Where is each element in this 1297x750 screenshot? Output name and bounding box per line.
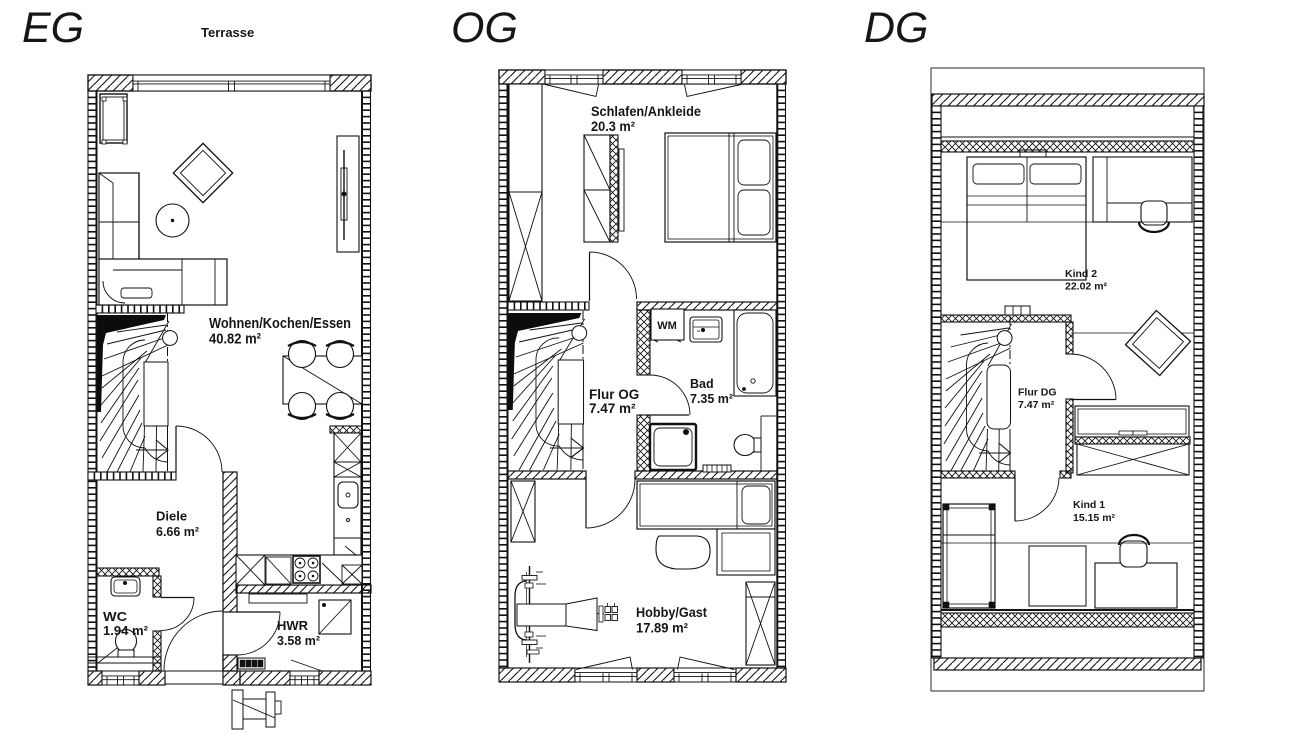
svg-text:Hobby/Gast: Hobby/Gast bbox=[636, 605, 707, 620]
svg-text:20.3 m²: 20.3 m² bbox=[591, 118, 635, 134]
svg-text:22.02 m²: 22.02 m² bbox=[1065, 281, 1108, 293]
svg-text:1.94 m²: 1.94 m² bbox=[103, 623, 149, 638]
svg-text:Schlafen/Ankleide: Schlafen/Ankleide bbox=[591, 103, 701, 119]
svg-text:7.47 m²: 7.47 m² bbox=[589, 401, 636, 416]
svg-text:Flur OG: Flur OG bbox=[589, 387, 639, 402]
svg-text:3.58 m²: 3.58 m² bbox=[277, 633, 321, 648]
svg-text:40.82 m²: 40.82 m² bbox=[209, 331, 261, 348]
svg-text:OG: OG bbox=[451, 4, 518, 52]
svg-text:Bad: Bad bbox=[690, 377, 714, 391]
svg-text:EG: EG bbox=[22, 4, 84, 52]
svg-text:Kind 2: Kind 2 bbox=[1065, 268, 1097, 280]
svg-text:Kind 1: Kind 1 bbox=[1073, 499, 1105, 511]
svg-text:WC: WC bbox=[103, 609, 128, 624]
svg-text:7.47 m²: 7.47 m² bbox=[1018, 399, 1055, 411]
svg-text:15.15 m²: 15.15 m² bbox=[1073, 512, 1116, 524]
svg-text:HWR: HWR bbox=[277, 618, 309, 633]
svg-text:Wohnen/Kochen/Essen: Wohnen/Kochen/Essen bbox=[209, 315, 351, 332]
svg-text:Terrasse: Terrasse bbox=[201, 25, 254, 40]
svg-text:7.35 m²: 7.35 m² bbox=[690, 392, 733, 406]
svg-text:Diele: Diele bbox=[156, 509, 187, 524]
svg-text:6.66 m²: 6.66 m² bbox=[156, 524, 200, 539]
svg-text:17.89 m²: 17.89 m² bbox=[636, 621, 688, 636]
svg-text:Flur DG: Flur DG bbox=[1018, 387, 1057, 399]
svg-text:DG: DG bbox=[864, 4, 929, 52]
svg-text:WM: WM bbox=[657, 320, 677, 332]
